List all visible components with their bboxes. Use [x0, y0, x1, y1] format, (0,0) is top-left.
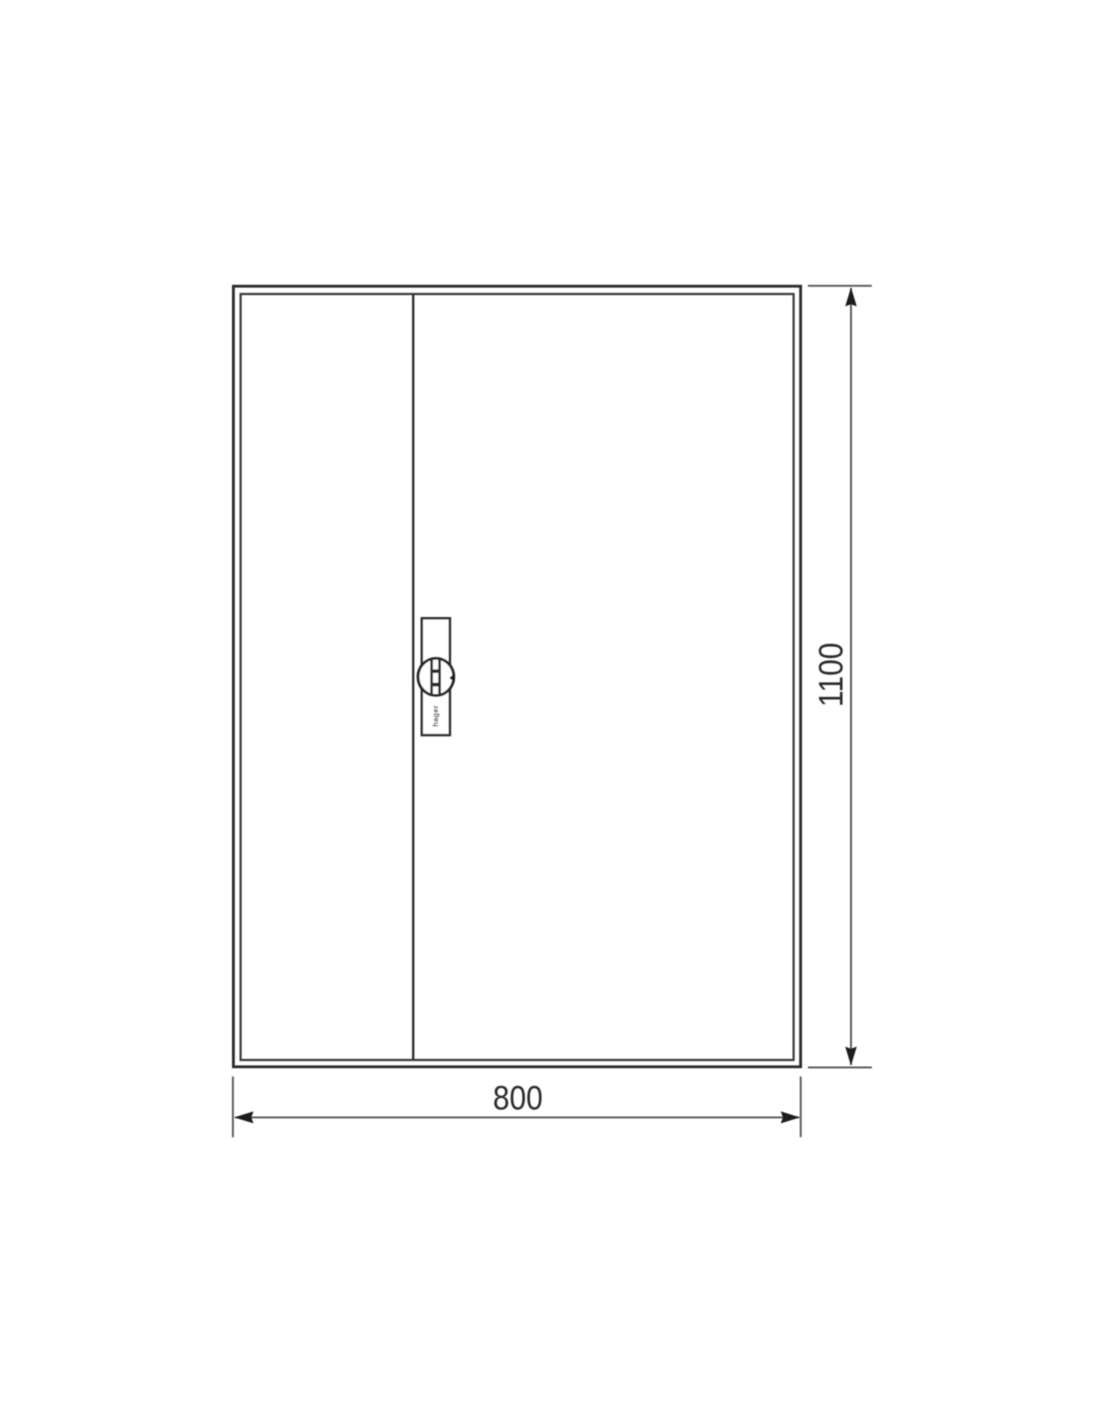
svg-text:800: 800 [493, 1079, 543, 1117]
svg-text:1100: 1100 [812, 643, 850, 707]
svg-text:hager: hager [431, 705, 440, 726]
